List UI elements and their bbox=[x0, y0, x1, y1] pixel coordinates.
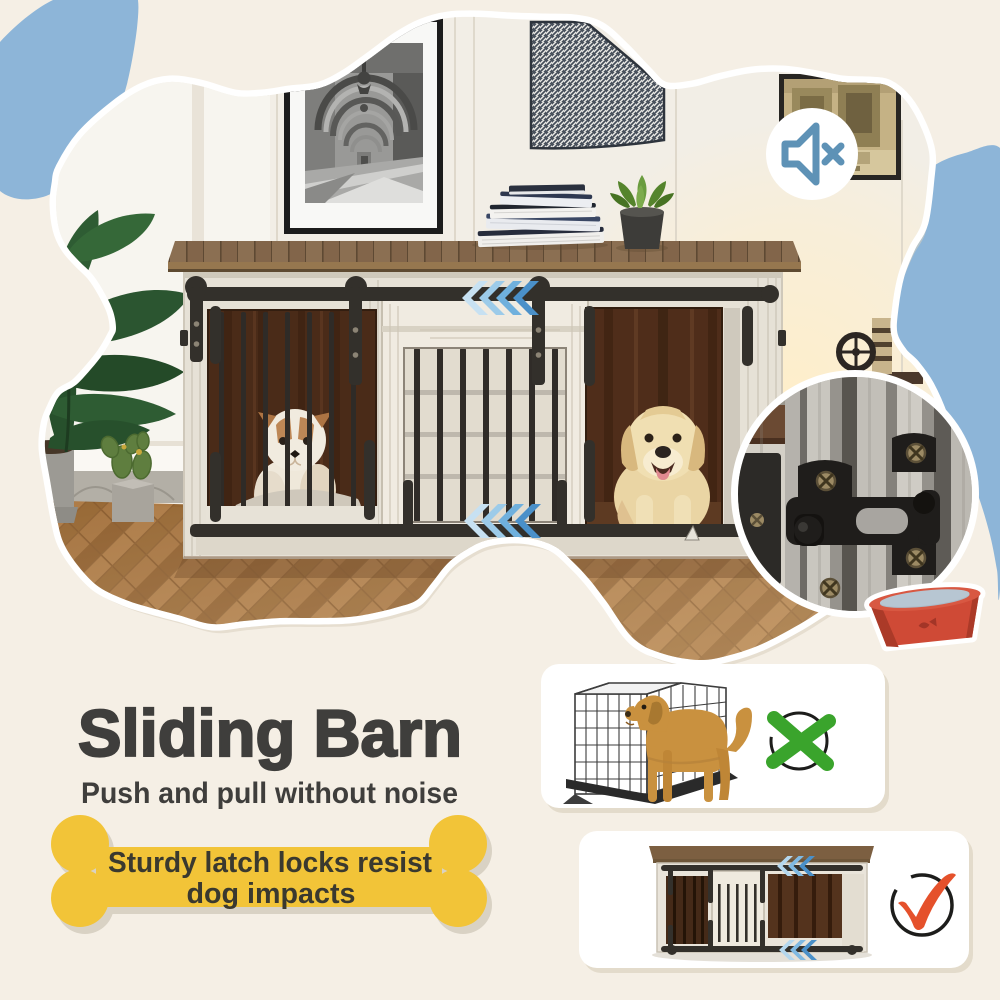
svg-text:Push and pull without noise: Push and pull without noise bbox=[81, 777, 458, 810]
svg-text:dog impacts: dog impacts bbox=[187, 878, 356, 910]
svg-text:Sturdy latch locks resist: Sturdy latch locks resist bbox=[108, 847, 432, 879]
svg-text:Sliding Barn: Sliding Barn bbox=[78, 696, 462, 770]
